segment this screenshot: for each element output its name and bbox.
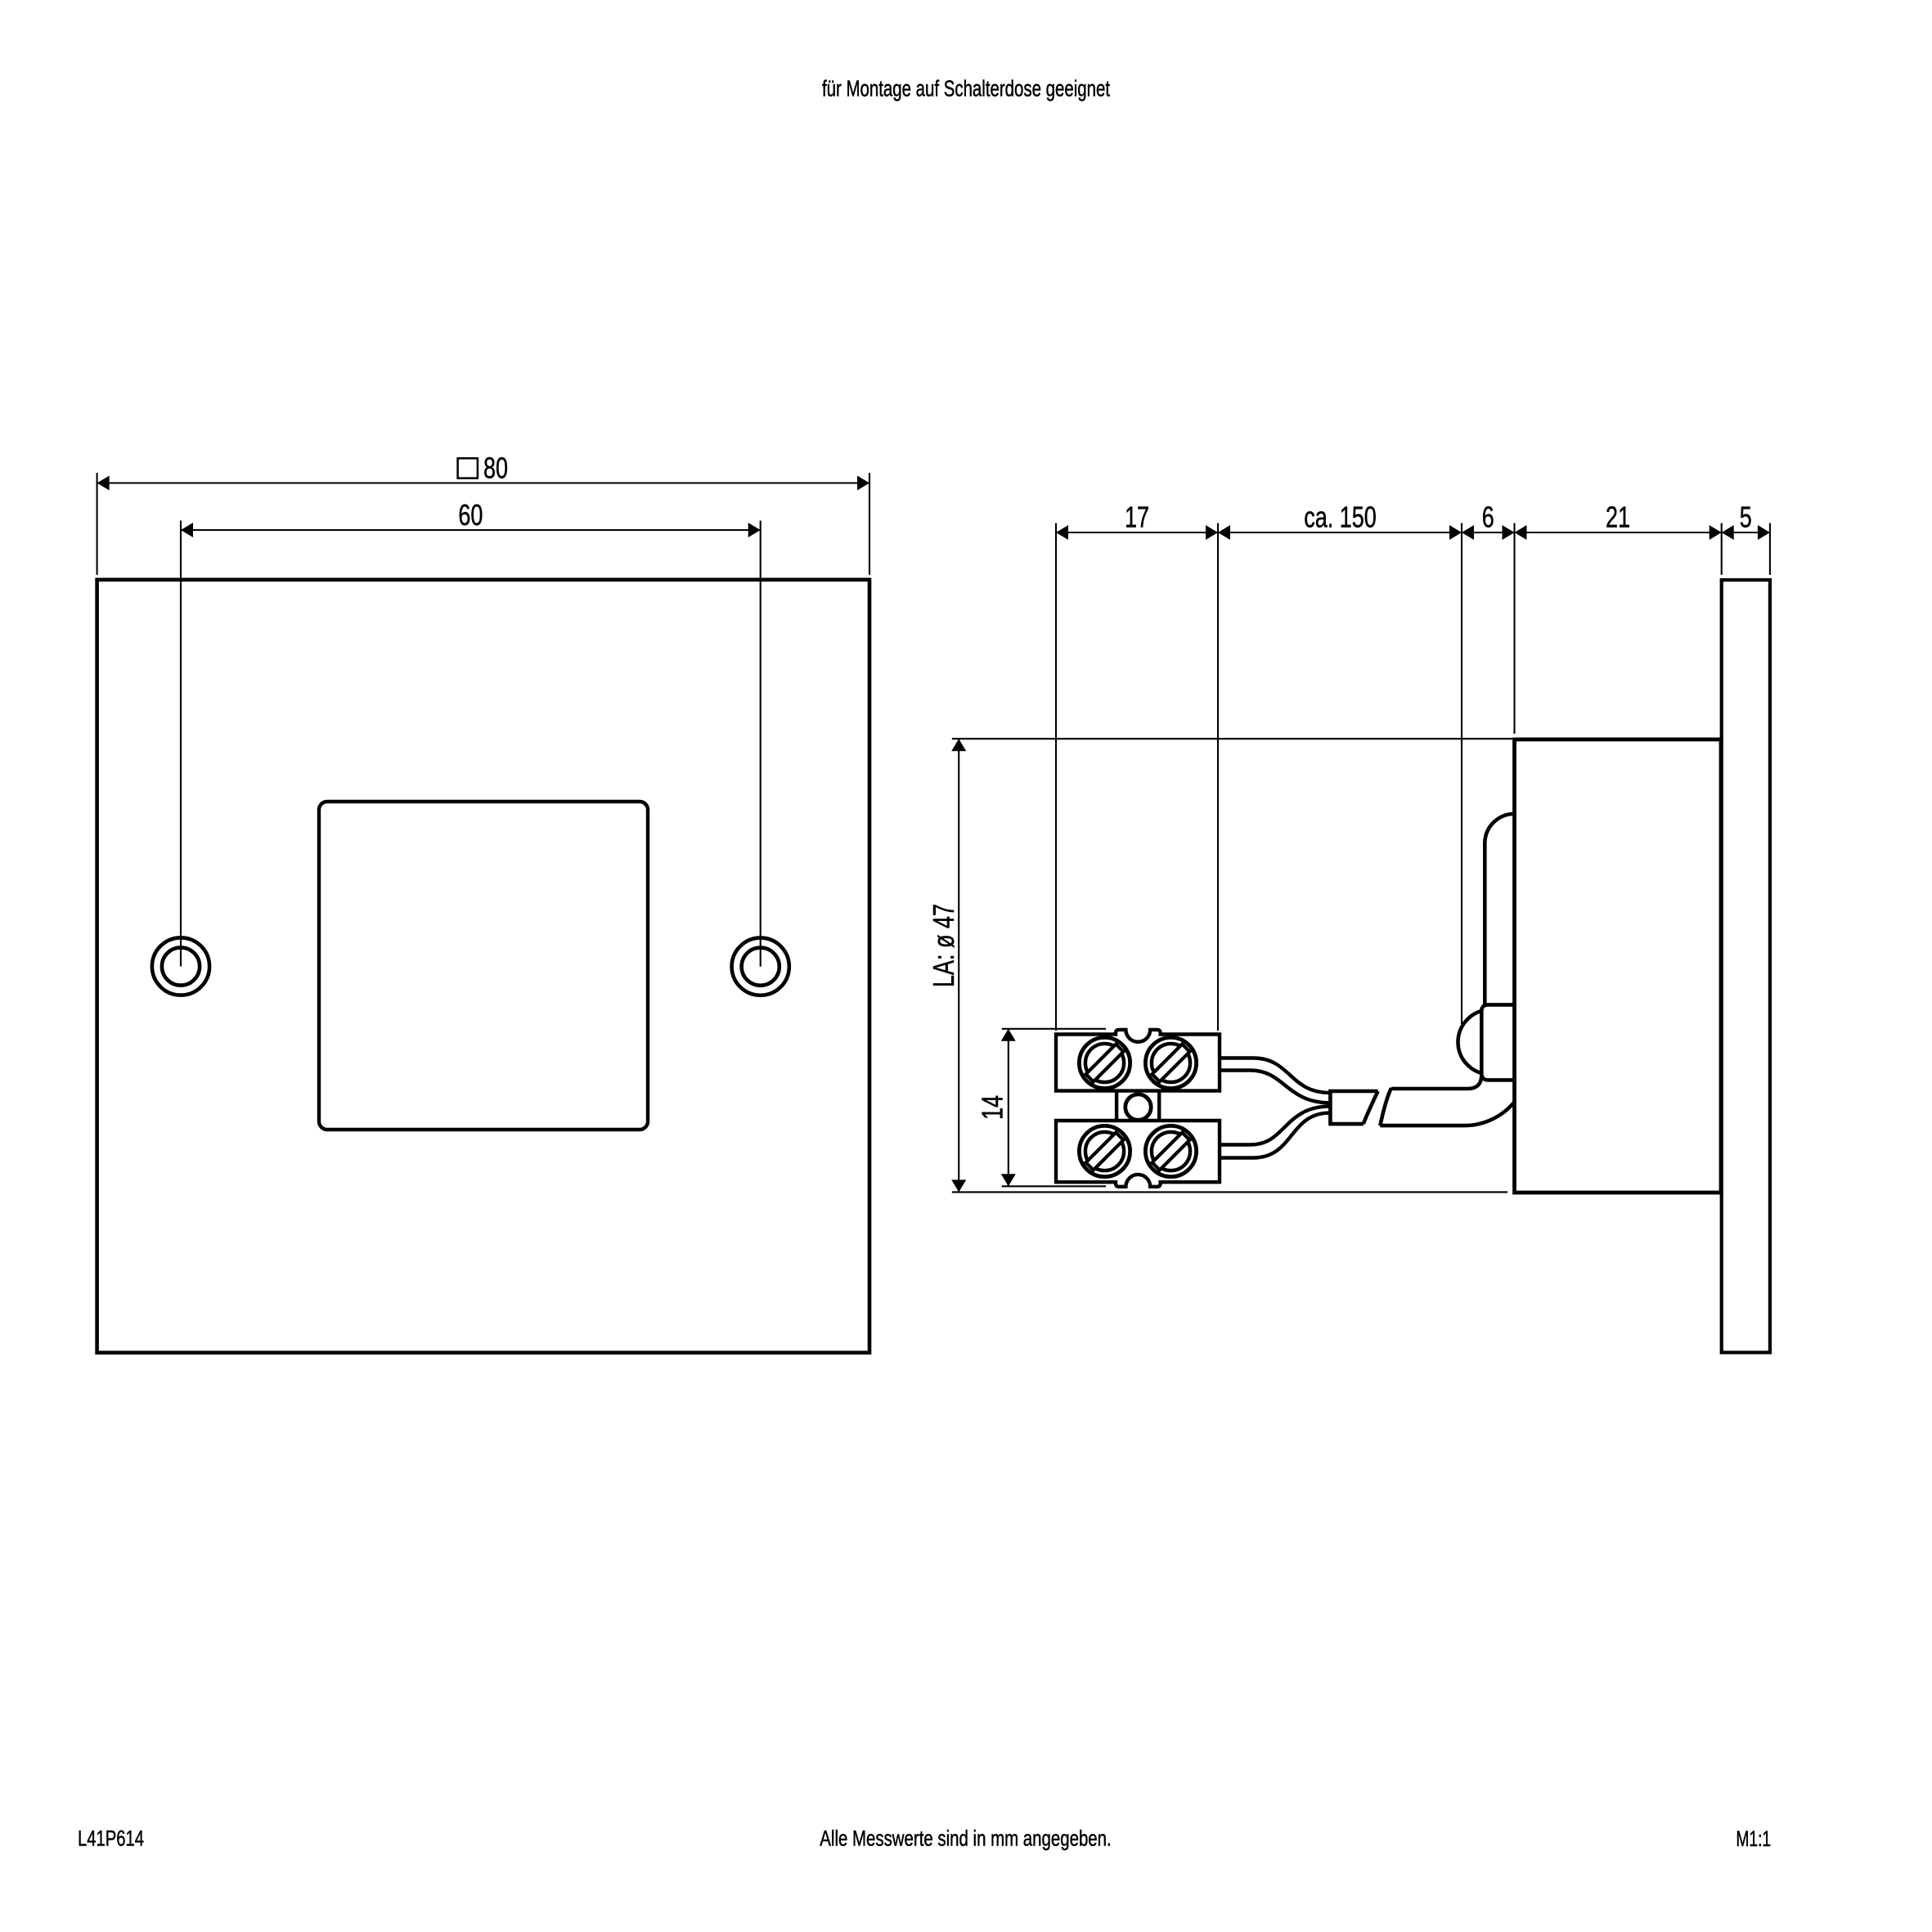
svg-text:LA: ø 47: LA: ø 47 (927, 904, 960, 987)
svg-text:6: 6 (1482, 500, 1494, 533)
svg-text:Alle Messwerte sind in mm ange: Alle Messwerte sind in mm angegeben. (820, 1826, 1111, 1851)
svg-text:14: 14 (975, 1095, 1009, 1120)
svg-text:M1:1: M1:1 (1736, 1826, 1771, 1851)
svg-text:60: 60 (458, 498, 483, 532)
svg-text:5: 5 (1740, 500, 1752, 533)
svg-text:17: 17 (1125, 500, 1149, 533)
svg-text:21: 21 (1606, 500, 1630, 533)
svg-text:L41P614: L41P614 (78, 1826, 144, 1851)
svg-text:ca. 150: ca. 150 (1304, 500, 1377, 533)
svg-text:80: 80 (483, 451, 508, 484)
svg-text:für Montage auf Schalterdose g: für Montage auf Schalterdose geeignet (822, 75, 1110, 101)
